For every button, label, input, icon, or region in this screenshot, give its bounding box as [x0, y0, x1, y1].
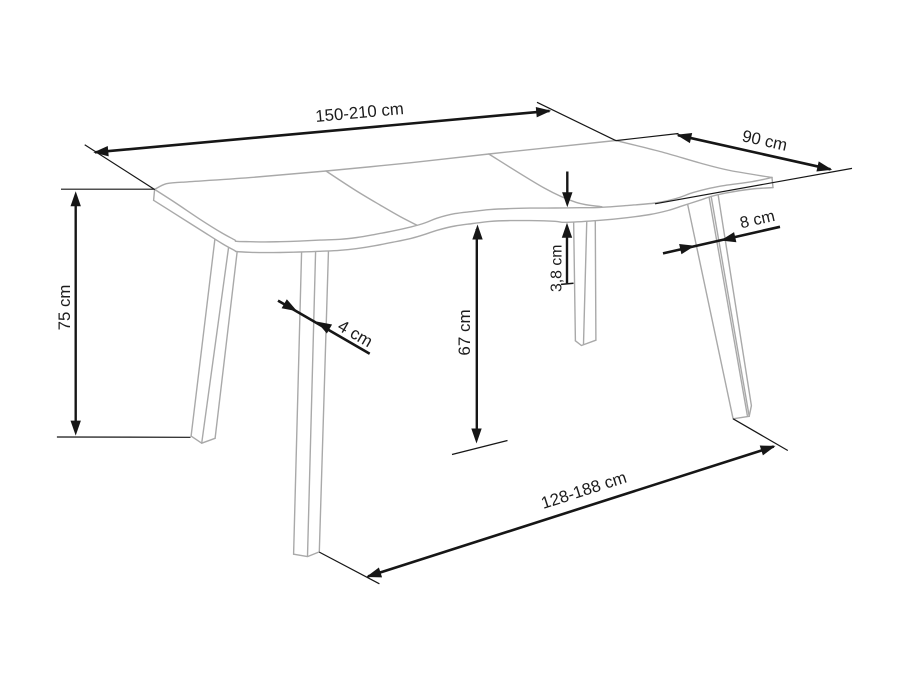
svg-text:67 cm: 67 cm — [455, 309, 474, 355]
svg-text:75 cm: 75 cm — [55, 285, 74, 331]
svg-text:3,8 cm: 3,8 cm — [549, 245, 566, 292]
